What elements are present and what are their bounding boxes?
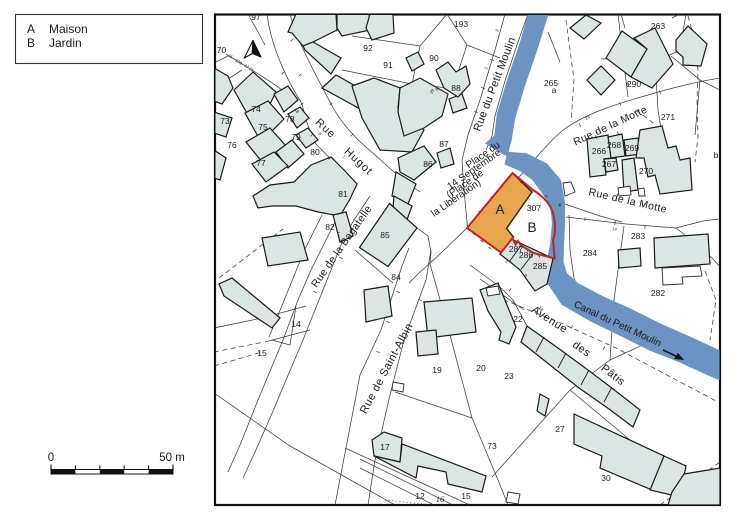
svg-text:0: 0 <box>48 452 54 464</box>
svg-text:23: 23 <box>504 371 514 381</box>
svg-text:284: 284 <box>583 248 597 258</box>
svg-text:307: 307 <box>527 203 541 213</box>
svg-text:270: 270 <box>639 166 653 176</box>
svg-text:269: 269 <box>625 143 639 153</box>
svg-text:a: a <box>552 85 557 95</box>
svg-text:266: 266 <box>592 146 606 156</box>
svg-text:20: 20 <box>476 363 486 373</box>
svg-text:70: 70 <box>217 45 227 55</box>
svg-text:15: 15 <box>461 491 471 501</box>
svg-text:81: 81 <box>338 189 348 199</box>
svg-text:90: 90 <box>429 53 439 63</box>
svg-text:Maison: Maison <box>49 22 88 36</box>
svg-text:B: B <box>27 36 35 50</box>
svg-text:76: 76 <box>227 140 237 150</box>
svg-text:271: 271 <box>661 112 675 122</box>
svg-text:A: A <box>495 202 504 217</box>
svg-text:B: B <box>527 220 536 235</box>
svg-text:79: 79 <box>291 132 301 142</box>
svg-text:19: 19 <box>432 365 442 375</box>
svg-text:92: 92 <box>363 43 373 53</box>
svg-text:78: 78 <box>285 114 295 124</box>
svg-text:283: 283 <box>631 231 645 241</box>
svg-text:263: 263 <box>651 21 665 31</box>
svg-text:290: 290 <box>627 79 641 89</box>
svg-text:86: 86 <box>423 159 433 169</box>
svg-text:22: 22 <box>513 314 523 324</box>
svg-text:30: 30 <box>601 473 611 483</box>
svg-text:91: 91 <box>383 60 393 70</box>
svg-text:267: 267 <box>602 159 616 169</box>
svg-text:77: 77 <box>256 158 266 168</box>
svg-text:88: 88 <box>451 83 461 93</box>
svg-text:12: 12 <box>415 491 425 501</box>
svg-text:193: 193 <box>454 19 468 29</box>
svg-text:268: 268 <box>607 140 621 150</box>
svg-text:74: 74 <box>251 104 261 114</box>
svg-text:285: 285 <box>533 261 547 271</box>
svg-text:15: 15 <box>257 348 267 358</box>
svg-text:Jardin: Jardin <box>49 36 82 50</box>
svg-text:84: 84 <box>391 272 401 282</box>
svg-text:80: 80 <box>310 147 320 157</box>
svg-text:75: 75 <box>258 122 268 132</box>
svg-text:286: 286 <box>519 250 533 260</box>
svg-text:73: 73 <box>487 441 497 451</box>
svg-text:27: 27 <box>555 424 565 434</box>
svg-text:50 m: 50 m <box>159 452 185 464</box>
svg-text:b: b <box>714 150 719 160</box>
svg-text:14: 14 <box>291 319 301 329</box>
svg-text:85: 85 <box>380 230 390 240</box>
svg-text:82: 82 <box>325 222 335 232</box>
svg-text:87: 87 <box>439 139 449 149</box>
svg-text:282: 282 <box>651 288 665 298</box>
svg-text:73: 73 <box>220 116 230 126</box>
svg-text:17: 17 <box>380 442 390 452</box>
svg-text:A: A <box>27 22 35 36</box>
svg-text:16: 16 <box>436 494 445 504</box>
